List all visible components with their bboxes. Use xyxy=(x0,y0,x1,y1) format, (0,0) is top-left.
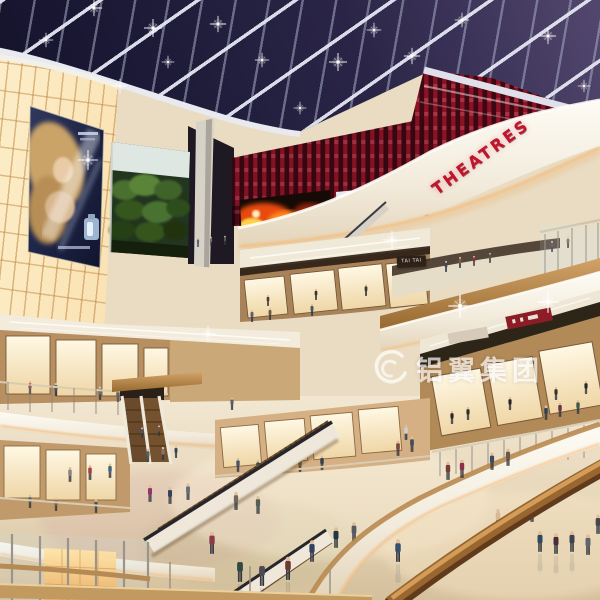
atrium-painting xyxy=(0,0,600,600)
perfume-billboard xyxy=(17,106,104,268)
green-wall xyxy=(109,142,190,258)
shop-sign-tai-tai: TAI TAI xyxy=(397,255,427,268)
mall-scene: THEATRES TAI TAI 铝翼集团 xyxy=(0,0,600,600)
